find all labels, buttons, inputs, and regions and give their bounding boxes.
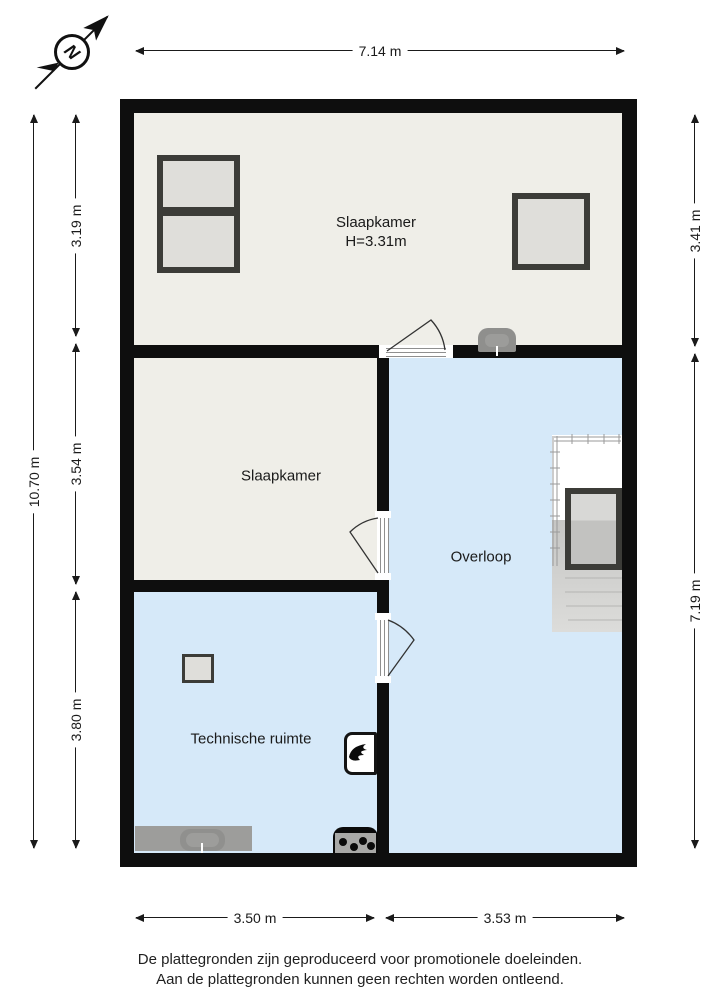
door-slaapkamer-middle [377,517,389,574]
roof-window-over-stairs-icon [565,488,622,570]
dimension-value: 7.14 m [353,42,408,60]
door-cap [375,676,391,683]
footer-line-2: Aan de plattegronden kunnen geen rechten… [138,970,582,990]
dimension-value: 3.53 m [478,909,533,927]
door-cap [446,345,453,358]
manifold-knob-icon [350,843,358,851]
roof-window-icon [157,210,240,273]
dimension-value: 3.41 m [686,203,704,258]
door-cap [375,613,391,620]
dimension-value: 3.50 m [228,909,283,927]
floorplan-canvas: Slaapkamer H=3.31m Slaapkamer Overloop T… [0,0,721,1000]
roof-window-icon [182,654,214,683]
room-height: H=3.31m [336,232,416,251]
manifold-knob-icon [339,838,347,846]
dimension-bottom-right: 3.53 m [386,917,624,918]
door-technische-ruimte [377,619,389,677]
dimension-left-segment-1: 3.19 m [75,115,76,336]
compass-north-letter: N [60,40,84,64]
room-name: Slaapkamer [336,213,416,232]
dimension-value: 7.19 m [686,574,704,629]
footer-line-1: De plattegronden zijn geproduceerd voor … [138,950,582,970]
footer-disclaimer: De plattegronden zijn geproduceerd voor … [138,950,582,990]
dimension-bottom-left: 3.50 m [136,917,374,918]
sink-basin [186,833,219,847]
room-label-overloop: Overloop [451,548,512,567]
dimension-left-segment-3: 3.80 m [75,592,76,848]
dimension-right-segment-2: 7.19 m [694,354,695,848]
door-cap [375,511,391,518]
dimension-height-total: 10.70 m [33,115,34,848]
roof-window-icon [157,155,240,213]
dimension-right-segment-1: 3.41 m [694,115,695,346]
room-label-technische-ruimte: Technische ruimte [191,730,312,749]
dimension-value: 3.80 m [67,693,85,748]
dimension-width-top: 7.14 m [136,50,624,51]
roof-window-icon [512,193,590,270]
door-cap [379,345,386,358]
dimension-value: 3.54 m [67,437,85,492]
boiler-unit [344,732,377,775]
manifold-knob-icon [367,842,375,850]
room-label-slaapkamer-middle: Slaapkamer [241,467,321,486]
dimension-left-segment-2: 3.54 m [75,344,76,584]
door-slaapkamer-top [386,345,446,358]
compass-tail-icon [37,54,61,78]
room-technische-ruimte [134,592,377,853]
dimension-value: 10.70 m [25,450,43,513]
dimension-value: 3.19 m [67,198,85,253]
room-label-slaapkamer-top: Slaapkamer H=3.31m [336,213,416,251]
north-compass-icon: N [24,4,121,101]
door-cap [375,573,391,580]
compass-needle-icon [83,9,115,41]
manifold-knob-icon [359,837,367,845]
sink-basin [485,334,509,347]
